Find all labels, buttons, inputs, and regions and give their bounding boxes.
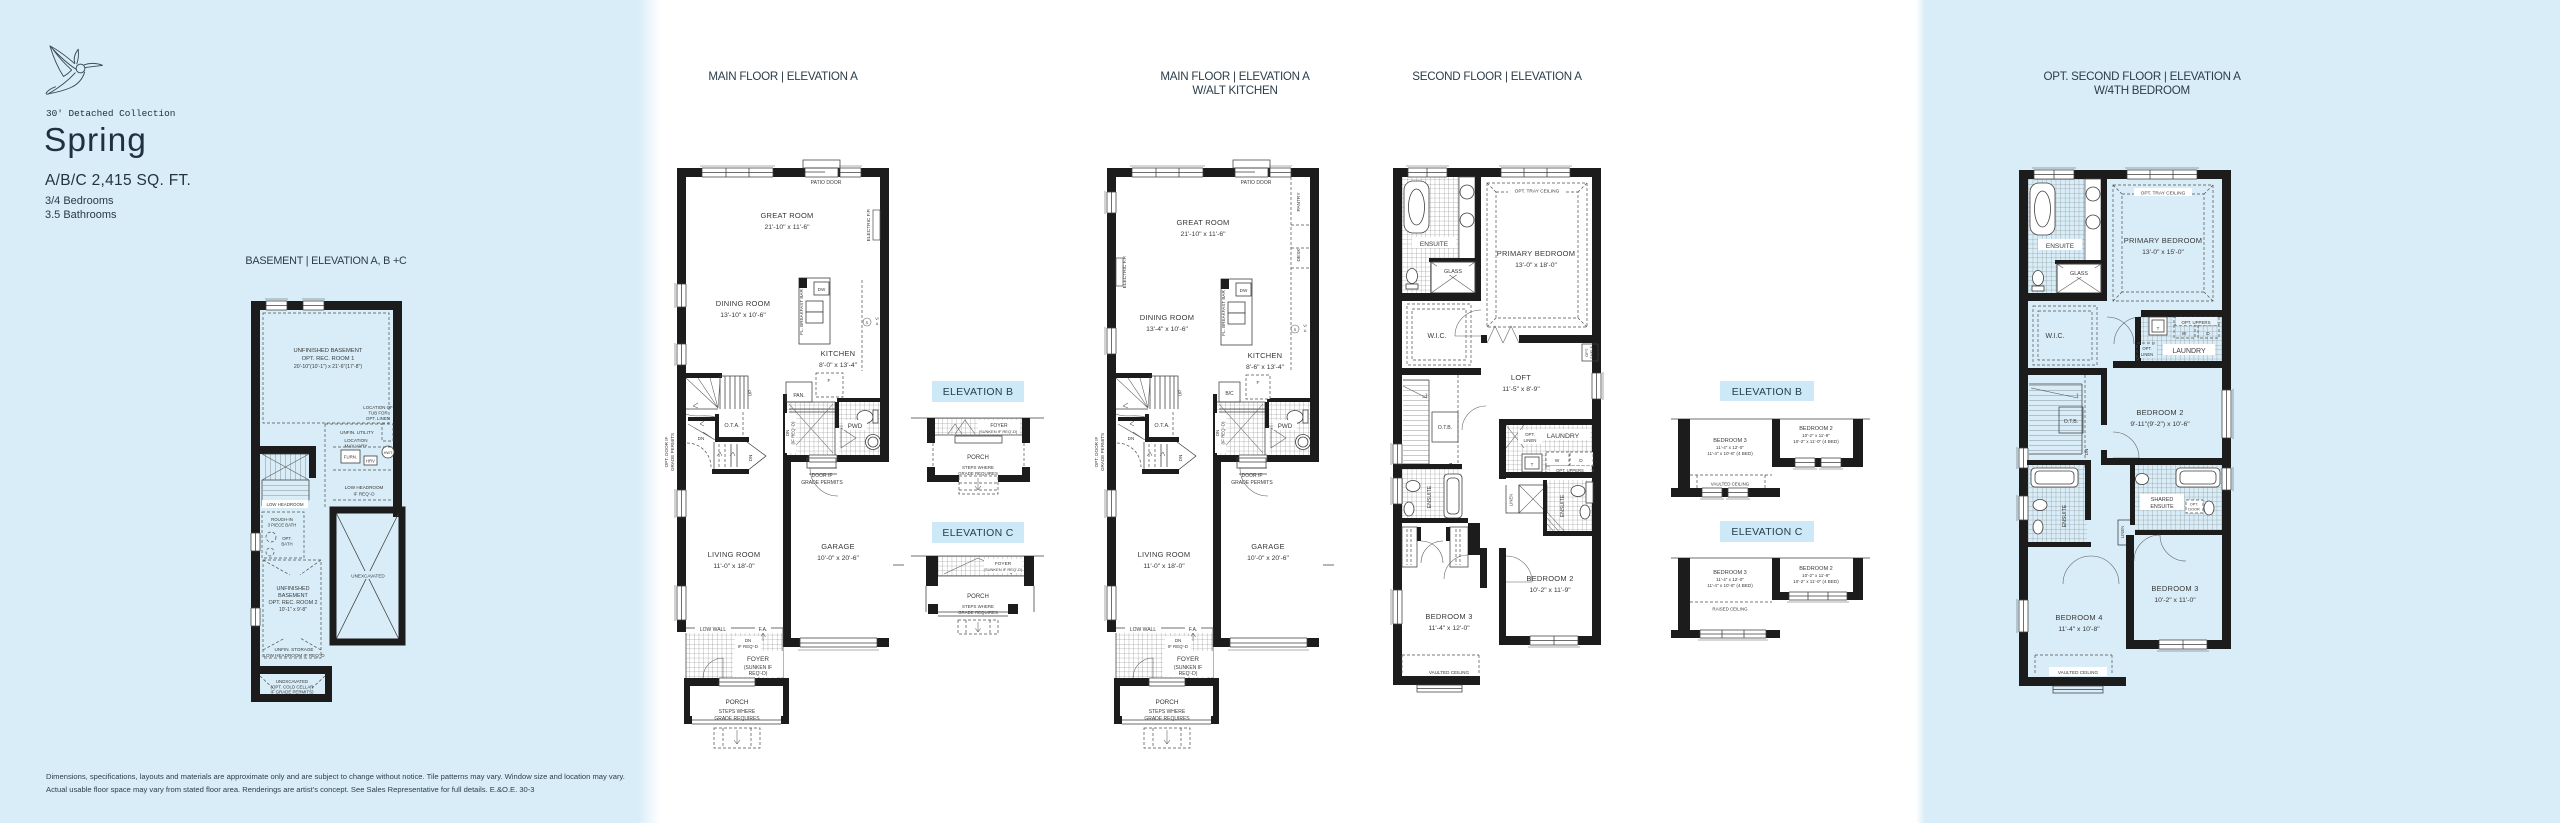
svg-text:UNFINISHED BASEMENT: UNFINISHED BASEMENT [294,348,363,354]
svg-text:LOW HEADROOM: LOW HEADROOM [266,502,303,507]
svg-text:ENSUITE: ENSUITE [2046,243,2075,250]
svg-text:DESK: DESK [1296,248,1302,262]
svg-text:STEPS WHERE: STEPS WHERE [962,465,994,470]
svg-text:BEDROOM 3: BEDROOM 3 [1713,570,1747,576]
svg-text:BATH: BATH [281,542,292,547]
svg-text:W/4TH BEDROOM: W/4TH BEDROOM [2094,84,2190,97]
svg-text:W.I.C.: W.I.C. [2045,333,2064,340]
svg-text:10'-2" x 11'-0": 10'-2" x 11'-0" [2154,597,2196,604]
svg-text:W/ALT KITCHEN: W/ALT KITCHEN [1192,84,1277,97]
svg-text:BEDROOM 3: BEDROOM 3 [1425,612,1472,621]
svg-text:Spring: Spring [44,122,147,159]
svg-text:13'-0" x 18'-0": 13'-0" x 18'-0" [1515,262,1557,269]
svg-text:RAISED CEILING: RAISED CEILING [1712,607,1748,612]
svg-text:BEDROOM 2: BEDROOM 2 [2136,408,2183,417]
svg-text:11'-5" x 8'-9": 11'-5" x 8'-9" [1502,386,1540,393]
svg-text:DW: DW [818,287,826,292]
svg-text:UNDXCAVATED: UNDXCAVATED [276,679,308,684]
svg-text:PRIMARY BEDROOM: PRIMARY BEDROOM [2124,236,2203,245]
svg-text:UP: UP [748,390,753,396]
svg-text:DW: DW [1240,288,1248,293]
svg-text:LINEN: LINEN [2120,526,2125,538]
svg-text:10'-2" x 11'-9": 10'-2" x 11'-9" [1802,433,1830,438]
svg-text:10'-2" x 11'-0" (4 BED): 10'-2" x 11'-0" (4 BED) [1793,439,1839,444]
svg-text:DOOR: DOOR [2188,508,2200,512]
svg-text:BEDROOM 3: BEDROOM 3 [2151,584,2198,593]
svg-text:ELEVATION B: ELEVATION B [943,386,1014,398]
svg-text:DN: DN [698,436,705,441]
svg-text:OPT. REC. ROOM 2: OPT. REC. ROOM 2 [268,600,317,606]
svg-text:SHELF: SHELF [1589,346,1594,359]
svg-text:MAIN FLOOR | ELEVATION A: MAIN FLOOR | ELEVATION A [1160,70,1310,83]
svg-text:UNEXCAVATED: UNEXCAVATED [351,574,385,579]
svg-text:ENSUITE: ENSUITE [1420,241,1449,248]
svg-text:LINEN: LINEN [1524,438,1537,443]
svg-text:ELECTRIC F.P.: ELECTRIC F.P. [866,209,872,242]
svg-text:LOCATION OF: LOCATION OF [363,405,393,410]
svg-text:PORCH: PORCH [725,699,748,706]
svg-text:HWT: HWT [384,450,393,455]
svg-text:OPT. LINEN: OPT. LINEN [366,416,390,421]
svg-text:GREAT ROOM: GREAT ROOM [1176,218,1229,227]
svg-text:ENSUITE: ENSUITE [2062,504,2068,527]
svg-text:SECOND FLOOR | ELEVATION A: SECOND FLOOR | ELEVATION A [1412,70,1582,83]
svg-text:OPT. REC. ROOM 1: OPT. REC. ROOM 1 [302,356,355,362]
svg-text:FL. BREAKFAST BAR: FL. BREAKFAST BAR [799,289,804,335]
svg-text:13'-0" x 15'-0": 13'-0" x 15'-0" [2142,249,2184,256]
svg-text:30' Detached Collection: 30' Detached Collection [46,108,175,119]
svg-text:S: S [866,320,869,325]
svg-text:STEPS WHERE: STEPS WHERE [962,604,994,609]
svg-text:VAULTED CEILING: VAULTED CEILING [1711,482,1750,487]
svg-text:GRADE REQUIRES: GRADE REQUIRES [958,471,998,476]
svg-text:BEDROOM 3: BEDROOM 3 [1713,438,1747,444]
svg-text:BEDROOM 2: BEDROOM 2 [1799,426,1833,432]
svg-text:OPT. UPPERS: OPT. UPPERS [2181,320,2210,325]
svg-text:UNFINISHED: UNFINISHED [277,586,310,592]
svg-text:OPT. TRAY CEILING: OPT. TRAY CEILING [1515,189,1560,195]
svg-text:HRV: HRV [366,459,375,464]
svg-text:OPT.: OPT. [282,536,292,541]
svg-text:T: T [2157,326,2160,331]
svg-text:11'-4" x 12'-0": 11'-4" x 12'-0" [1716,445,1744,450]
svg-text:GRADE PERMITS: GRADE PERMITS [801,480,843,486]
svg-text:F: F [828,378,831,384]
svg-text:10'-2" x 11'-9": 10'-2" x 11'-9" [1529,587,1571,594]
svg-text:D: D [1579,458,1583,464]
svg-text:10'-0" x 20'-6": 10'-0" x 20'-6" [817,555,859,562]
svg-text:PORCH: PORCH [967,594,989,600]
svg-text:BEDROOM 4: BEDROOM 4 [2055,613,2102,622]
svg-text:VAULTED CEILING: VAULTED CEILING [1429,670,1470,675]
svg-text:ELEVATION B: ELEVATION B [1732,386,1803,398]
svg-text:OPT. TRAY CEILING: OPT. TRAY CEILING [2141,191,2186,197]
svg-text:FL. BREAKFAST BAR: FL. BREAKFAST BAR [1221,290,1226,336]
svg-text:TUB FOR: TUB FOR [368,411,387,416]
svg-text:13'-4" x 10'-6": 13'-4" x 10'-6" [1146,326,1188,333]
svg-text:DINING ROOM: DINING ROOM [716,299,770,308]
svg-text:3/4 Bedrooms: 3/4 Bedrooms [45,195,114,207]
svg-text:KITCHEN: KITCHEN [1248,351,1283,360]
svg-text:LINEN: LINEN [2141,352,2153,357]
svg-text:D: D [2206,331,2210,337]
svg-text:DN: DN [748,455,753,462]
svg-text:8'-0" x 13'-4": 8'-0" x 13'-4" [819,362,858,369]
svg-text:REQ'-D): REQ'-D) [749,671,768,677]
svg-text:ELEVATION C: ELEVATION C [1731,526,1802,538]
svg-text:LAUNDRY: LAUNDRY [2172,348,2206,355]
svg-text:GRADE REQUIRES: GRADE REQUIRES [958,610,998,615]
svg-text:GLASS: GLASS [2070,271,2088,277]
svg-text:A: A [876,322,879,326]
svg-text:PATIO DOOR: PATIO DOOR [1241,180,1272,186]
svg-text:13'-10" x 10'-6": 13'-10" x 10'-6" [720,312,766,319]
svg-text:BEDROOM 2: BEDROOM 2 [1799,566,1833,572]
svg-text:21'-10" x 11'-6": 21'-10" x 11'-6" [1180,231,1226,238]
svg-text:ELEVATION C: ELEVATION C [942,527,1013,539]
svg-text:F: F [1257,380,1260,386]
svg-text:V/: V/ [1303,324,1308,328]
svg-text:FOYER: FOYER [747,656,769,663]
svg-text:10'-2" x 11'-0" (4 BED): 10'-2" x 11'-0" (4 BED) [1793,579,1839,584]
svg-text:GRADE PERMITS: GRADE PERMITS [670,433,675,471]
svg-text:GARAGE: GARAGE [821,542,855,551]
svg-text:F.A.: F.A. [759,627,768,633]
svg-text:21'-10" x 11'-6": 21'-10" x 11'-6" [764,224,810,231]
svg-text:OPT.: OPT. [2142,346,2151,351]
svg-text:MAIN FLOOR | ELEVATION A: MAIN FLOOR | ELEVATION A [708,70,858,83]
svg-text:S: S [1294,327,1297,332]
svg-text:Actual usable floor space may: Actual usable floor space may vary from … [46,785,535,794]
svg-text:STEPS WHERE: STEPS WHERE [719,709,756,715]
svg-text:LAUNDRY: LAUNDRY [1547,433,1580,440]
svg-text:GLASS: GLASS [1444,269,1462,275]
svg-text:UNFIN. STORAGE: UNFIN. STORAGE [275,647,314,652]
svg-text:V/: V/ [875,317,880,321]
svg-text:LOW WALL: LOW WALL [700,627,726,633]
svg-text:UNFIN. UTILITY: UNFIN. UTILITY [340,430,374,435]
svg-text:(IF REQ'-D): (IF REQ'-D) [791,421,796,445]
svg-text:3.5 Bathrooms: 3.5 Bathrooms [45,209,117,221]
svg-text:T: T [1531,462,1534,467]
svg-text:A: A [1304,329,1307,333]
svg-text:VAULTED CEILING: VAULTED CEILING [2058,670,2099,675]
svg-text:O.T.A.: O.T.A. [724,423,740,429]
svg-text:ROUGH-IN: ROUGH-IN [271,517,293,522]
svg-text:BEDROOM 2: BEDROOM 2 [1526,574,1573,583]
svg-text:ELECTRIC F.P.: ELECTRIC F.P. [1122,256,1128,289]
svg-text:ENSUITE: ENSUITE [1560,494,1566,517]
svg-text:11'-0" x 18'-0": 11'-0" x 18'-0" [713,563,755,570]
svg-text:OPT.: OPT. [1525,432,1535,437]
svg-text:PORCH: PORCH [967,455,989,461]
svg-text:DN: DN [785,430,790,436]
svg-text:11'-4" x 12'-0": 11'-4" x 12'-0" [1716,577,1744,582]
svg-text:(SUNKEN IF REQ'-D): (SUNKEN IF REQ'-D) [979,429,1018,434]
svg-text:11'-4" x 12'-0": 11'-4" x 12'-0" [1428,625,1470,632]
svg-text:A/B/C 2,415 SQ. FT.: A/B/C 2,415 SQ. FT. [45,172,191,189]
svg-text:ENSUITE: ENSUITE [2150,504,2174,510]
svg-text:LOCATION: LOCATION [344,438,367,443]
svg-text:FURN.: FURN. [344,455,357,460]
svg-text:20'-10"(10'-1") x 21'-6"(17'-8: 20'-10"(10'-1") x 21'-6"(17'-8") [294,364,362,370]
svg-text:PATIO DOOR: PATIO DOOR [811,180,842,186]
svg-text:LINEN: LINEN [1509,494,1514,506]
svg-text:11'-4" x 10'-8": 11'-4" x 10'-8" [2058,626,2100,633]
svg-text:DOOR IF: DOOR IF [812,473,833,479]
svg-text:KITCHEN: KITCHEN [821,349,856,358]
svg-text:O.T.B.: O.T.B. [1438,425,1452,431]
svg-text:ENSUITE: ENSUITE [1427,485,1433,508]
svg-text:9'-11"(9'-2") x 10'-6": 9'-11"(9'-2") x 10'-6" [2130,421,2190,428]
svg-text:PANTRY: PANTRY [1296,192,1302,212]
svg-text:10'-1" x 9'-8": 10'-1" x 9'-8" [279,607,307,613]
svg-text:OPT. DOOR IF: OPT. DOOR IF [664,437,669,468]
svg-text:PAN.: PAN. [793,393,804,399]
svg-text:3 PIECE BATH: 3 PIECE BATH [268,523,297,528]
svg-text:IF REQ'-D: IF REQ'-D [353,492,375,497]
svg-text:LOFT: LOFT [1511,373,1531,382]
svg-text:BASEMENT: BASEMENT [278,593,308,599]
svg-text:BASEMENT | ELEVATION A, B +C: BASEMENT | ELEVATION A, B +C [245,255,407,267]
svg-text:LOW HEADROOM: LOW HEADROOM [345,485,384,490]
svg-text:DN: DN [745,638,751,643]
svg-text:MAY VARY: MAY VARY [345,444,368,449]
svg-text:(SUNKEN IF REQ'-D): (SUNKEN IF REQ'-D) [984,567,1023,572]
svg-text:11'-4" x 10'-8" (4 BED): 11'-4" x 10'-8" (4 BED) [1707,451,1753,456]
svg-text:PRIMARY BEDROOM: PRIMARY BEDROOM [1497,249,1576,258]
svg-text:OPT. SECOND FLOOR | ELEVATIO: OPT. SECOND FLOOR | ELEVATION A [2043,70,2241,83]
svg-text:Dimensions, specifications, la: Dimensions, specifications, layouts and … [46,772,625,781]
svg-text:W: W [2182,331,2187,337]
svg-text:O.T.B.: O.T.B. [2064,419,2078,425]
svg-text:SHARED: SHARED [2151,497,2174,503]
svg-text:8'-6" x 13'-4": 8'-6" x 13'-4" [1246,364,1285,371]
svg-text:W: W [1555,458,1560,464]
svg-text:DINING ROOM: DINING ROOM [1140,313,1194,322]
svg-text:GREAT ROOM: GREAT ROOM [760,211,813,220]
svg-text:IF REQ'-D: IF REQ'-D [738,644,758,649]
svg-text:PWD: PWD [848,423,863,430]
svg-text:11'-4" x 10'-8" (4 BED): 11'-4" x 10'-8" (4 BED) [1707,583,1753,588]
svg-text:W.I.C.: W.I.C. [1427,333,1446,340]
svg-text:GRADE REQUIRES: GRADE REQUIRES [714,716,760,722]
svg-text:LOW HEADROOM IF REQ'-D: LOW HEADROOM IF REQ'-D [263,653,325,658]
svg-text:IF GRADE PERMITS): IF GRADE PERMITS) [271,690,314,695]
svg-text:OPT.: OPT. [2190,503,2198,507]
svg-text:LIVING ROOM: LIVING ROOM [708,550,761,559]
svg-text:B/C: B/C [1225,391,1234,397]
svg-text:10'-2" x 11'-9": 10'-2" x 11'-9" [1802,573,1830,578]
